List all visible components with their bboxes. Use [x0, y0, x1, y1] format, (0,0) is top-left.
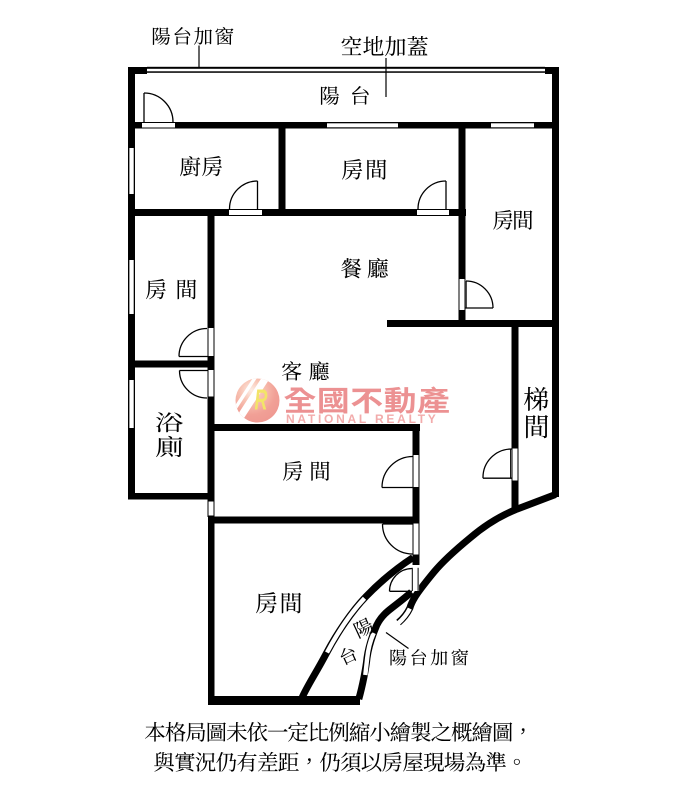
svg-text:R: R: [255, 384, 268, 416]
svg-text:NATIONAL REALTY: NATIONAL REALTY: [286, 412, 439, 426]
